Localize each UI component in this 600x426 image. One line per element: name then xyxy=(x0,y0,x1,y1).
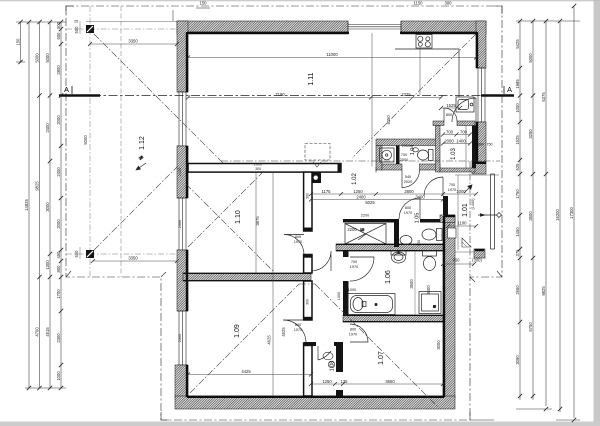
svg-text:(1400): (1400) xyxy=(471,198,475,210)
svg-text:3000: 3000 xyxy=(436,340,441,350)
svg-text:2400: 2400 xyxy=(56,167,61,177)
svg-text:5000: 5000 xyxy=(35,53,40,63)
svg-text:9825: 9825 xyxy=(35,181,40,191)
svg-text:2200: 2200 xyxy=(347,227,357,232)
svg-text:150: 150 xyxy=(200,1,208,6)
svg-text:5000: 5000 xyxy=(528,53,533,63)
svg-text:1970: 1970 xyxy=(294,328,302,332)
svg-text:700: 700 xyxy=(449,183,455,187)
svg-text:150: 150 xyxy=(16,38,21,46)
svg-text:300: 300 xyxy=(306,299,310,305)
svg-text:17300: 17300 xyxy=(569,207,574,219)
svg-text:2800: 2800 xyxy=(404,189,414,194)
svg-text:1970: 1970 xyxy=(350,265,358,269)
svg-text:2000: 2000 xyxy=(56,219,61,229)
svg-text:1.12: 1.12 xyxy=(139,136,146,150)
svg-text:700: 700 xyxy=(351,260,357,264)
svg-text:2000: 2000 xyxy=(400,158,408,162)
svg-text:1000: 1000 xyxy=(56,371,61,381)
svg-text:1000: 1000 xyxy=(515,103,520,113)
svg-text:1750: 1750 xyxy=(515,189,520,199)
svg-text:540: 540 xyxy=(405,175,411,179)
svg-text:1.06: 1.06 xyxy=(385,270,392,284)
svg-text:500: 500 xyxy=(74,250,79,258)
svg-text:1300: 1300 xyxy=(45,260,50,270)
svg-text:1450: 1450 xyxy=(515,227,520,237)
svg-text:1970: 1970 xyxy=(294,240,302,244)
svg-text:1000: 1000 xyxy=(456,189,466,194)
svg-text:9825: 9825 xyxy=(541,286,546,296)
svg-text:625: 625 xyxy=(515,163,520,171)
svg-text:1700: 1700 xyxy=(56,289,61,299)
svg-text:3400: 3400 xyxy=(415,195,425,200)
svg-text:5000: 5000 xyxy=(83,135,88,145)
svg-text:700: 700 xyxy=(460,130,468,135)
svg-text:5025: 5025 xyxy=(365,200,375,205)
svg-text:1100: 1100 xyxy=(457,221,467,226)
svg-text:25: 25 xyxy=(74,20,78,24)
svg-text:4050: 4050 xyxy=(386,115,391,125)
svg-text:2400: 2400 xyxy=(178,168,182,176)
svg-text:1.07: 1.07 xyxy=(378,351,385,365)
svg-text:1.04: 1.04 xyxy=(410,145,416,156)
svg-text:2300: 2300 xyxy=(56,333,61,343)
svg-text:800: 800 xyxy=(350,328,356,332)
svg-text:16200: 16200 xyxy=(555,209,560,221)
svg-text:2400: 2400 xyxy=(45,123,50,133)
svg-text:1175: 1175 xyxy=(321,189,331,194)
svg-text:6375: 6375 xyxy=(541,92,546,102)
svg-text:2020: 2020 xyxy=(404,180,412,184)
svg-text:500: 500 xyxy=(74,26,79,34)
svg-text:700: 700 xyxy=(401,153,407,157)
svg-text:7190: 7190 xyxy=(275,92,285,97)
svg-text:1525: 1525 xyxy=(446,103,456,108)
svg-text:1400: 1400 xyxy=(456,139,466,144)
svg-text:14825: 14825 xyxy=(24,199,29,211)
svg-text:800: 800 xyxy=(295,235,301,239)
svg-text:4425: 4425 xyxy=(241,369,251,374)
svg-text:5000: 5000 xyxy=(45,53,50,63)
svg-text:900: 900 xyxy=(417,240,421,246)
svg-text:1150: 1150 xyxy=(413,1,423,6)
svg-text:1.03: 1.03 xyxy=(451,148,457,160)
svg-text:1.09: 1.09 xyxy=(234,324,241,338)
svg-text:950: 950 xyxy=(453,258,461,263)
svg-text:1.05: 1.05 xyxy=(415,213,421,224)
svg-text:300: 300 xyxy=(445,1,453,6)
svg-text:11000: 11000 xyxy=(326,52,338,57)
svg-text:3500: 3500 xyxy=(409,279,414,289)
svg-text:800: 800 xyxy=(446,113,452,117)
svg-text:3500: 3500 xyxy=(528,211,533,221)
svg-text:1970: 1970 xyxy=(448,188,456,192)
svg-text:125: 125 xyxy=(341,379,349,384)
svg-text:4525: 4525 xyxy=(281,327,286,337)
svg-text:2800: 2800 xyxy=(56,65,61,75)
svg-text:(300): (300) xyxy=(472,258,482,263)
svg-text:600: 600 xyxy=(405,206,411,210)
svg-text:300: 300 xyxy=(478,143,484,147)
svg-text:1970: 1970 xyxy=(349,333,357,337)
svg-text:5750: 5750 xyxy=(528,322,533,332)
svg-text:375: 375 xyxy=(515,249,520,257)
svg-text:600: 600 xyxy=(56,32,61,40)
svg-text:4625: 4625 xyxy=(267,335,272,345)
svg-text:450: 450 xyxy=(56,251,61,259)
svg-text:3000: 3000 xyxy=(426,285,431,295)
svg-text:750: 750 xyxy=(486,143,492,147)
svg-text:2650: 2650 xyxy=(515,285,520,295)
svg-text:1985: 1985 xyxy=(515,79,520,89)
svg-text:300: 300 xyxy=(255,167,261,171)
svg-text:2000: 2000 xyxy=(402,144,410,148)
svg-text:3250: 3250 xyxy=(528,129,533,139)
svg-text:2000: 2000 xyxy=(444,139,454,144)
svg-text:1000: 1000 xyxy=(337,292,341,300)
svg-text:15: 15 xyxy=(360,228,364,232)
svg-text:800: 800 xyxy=(295,323,301,327)
svg-text:3650: 3650 xyxy=(385,379,395,384)
svg-text:3090: 3090 xyxy=(515,355,520,365)
svg-text:500: 500 xyxy=(56,21,61,29)
svg-text:700: 700 xyxy=(446,130,454,135)
svg-text:4515: 4515 xyxy=(45,327,50,337)
svg-text:3000: 3000 xyxy=(45,202,50,212)
svg-text:3350: 3350 xyxy=(128,256,138,261)
svg-text:1.11: 1.11 xyxy=(308,72,315,85)
svg-text:2000: 2000 xyxy=(178,220,182,228)
svg-text:A: A xyxy=(507,85,512,94)
svg-text:A: A xyxy=(64,85,69,94)
svg-text:1250: 1250 xyxy=(353,189,363,194)
svg-text:1.01: 1.01 xyxy=(462,203,469,217)
svg-text:2300: 2300 xyxy=(178,334,182,342)
svg-text:1.02: 1.02 xyxy=(352,173,358,185)
svg-text:3875: 3875 xyxy=(255,216,260,226)
svg-text:1525: 1525 xyxy=(515,135,520,145)
svg-text:1250: 1250 xyxy=(322,379,332,384)
svg-text:1.08: 1.08 xyxy=(330,361,336,372)
svg-text:300: 300 xyxy=(306,193,310,199)
svg-text:1.10: 1.10 xyxy=(235,210,242,224)
svg-text:2325: 2325 xyxy=(401,92,411,97)
svg-text:2000: 2000 xyxy=(56,115,61,125)
svg-text:2400: 2400 xyxy=(356,195,366,200)
svg-text:1970: 1970 xyxy=(404,211,412,215)
svg-text:1000: 1000 xyxy=(348,288,356,292)
svg-text:2200: 2200 xyxy=(361,214,369,218)
svg-text:5425: 5425 xyxy=(515,39,520,49)
svg-text:3350: 3350 xyxy=(128,39,138,44)
svg-text:800: 800 xyxy=(56,265,61,273)
svg-text:4700: 4700 xyxy=(35,327,40,337)
